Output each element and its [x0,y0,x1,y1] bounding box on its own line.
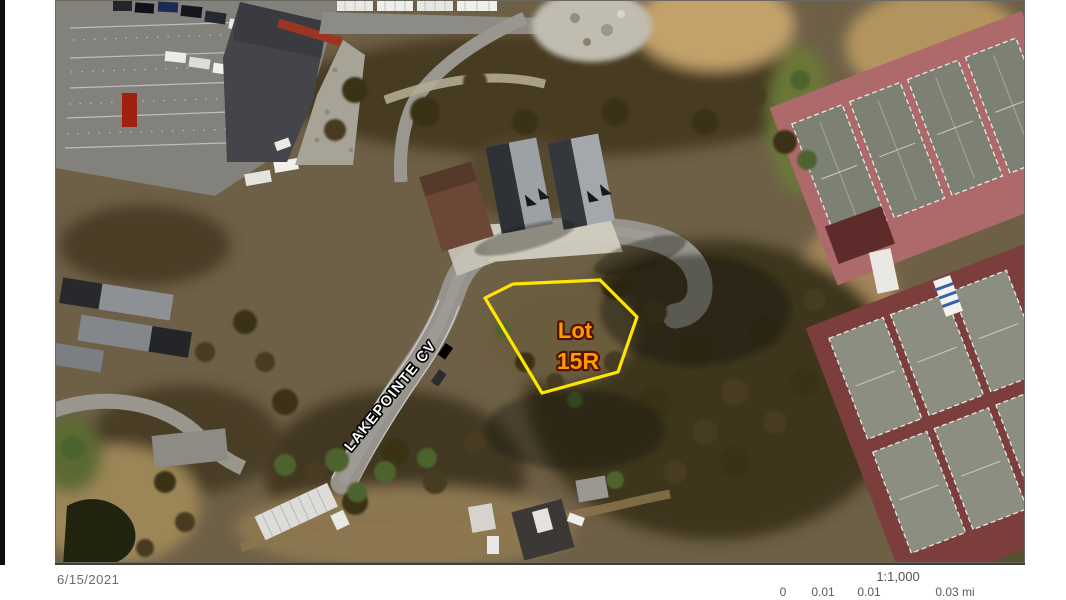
red-truck [122,93,137,127]
map-export-page: Lot 15R LAKEPOINTE CV 6/15/2021 1:1,000 … [0,0,1066,600]
aerial-map-canvas: Lot 15R LAKEPOINTE CV [55,0,1025,563]
left-black-bar [0,0,5,600]
scale-bar-label-3: 0.03 mi [935,585,974,599]
lot-label-line1: Lot [558,318,593,343]
scale-bar-label-2: 0.01 [857,585,880,599]
date-label: 6/15/2021 [57,572,119,587]
map-footer: 6/15/2021 1:1,000 0 0.01 0.01 0.03 mi [0,565,1066,600]
scale-bar-label-0: 0 [780,585,787,599]
lot-label-line2: 15R [557,348,600,374]
aerial-map-frame: Lot 15R LAKEPOINTE CV [55,0,1025,565]
scale-ratio-label: 1:1,000 [848,569,948,584]
scale-bar-label-1: 0.01 [811,585,834,599]
